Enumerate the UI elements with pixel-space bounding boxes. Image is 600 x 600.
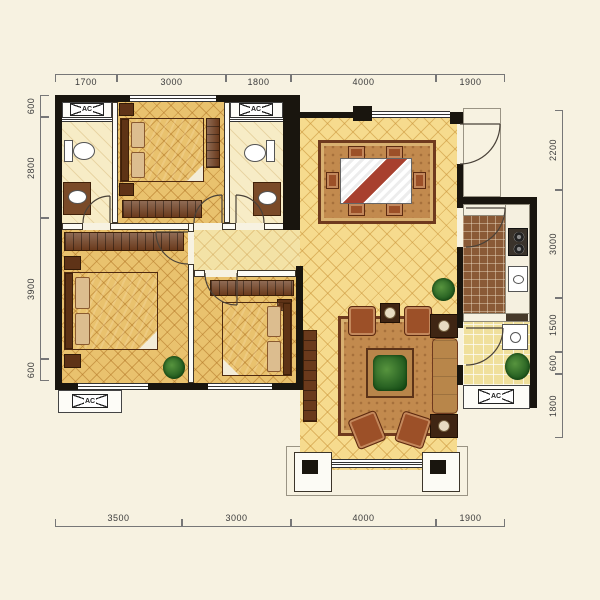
master-pillow [75, 277, 90, 309]
side-table [380, 303, 400, 323]
bedroom1-nightstand-top [119, 103, 134, 116]
wall [296, 266, 303, 390]
master-nightstand-bottom [64, 354, 81, 368]
sofa-end-table [430, 414, 458, 438]
ac-unit-icon: AC [478, 389, 514, 404]
bath1-window [62, 117, 112, 122]
dining-chair [348, 203, 365, 216]
wall [112, 102, 118, 223]
wall [457, 197, 463, 208]
dim-left-1: 600 [40, 95, 57, 117]
dim-top-5: 1900 [436, 74, 505, 91]
bedroom3-pillow [267, 306, 281, 337]
balcony-plant-icon [505, 353, 530, 380]
bathroom1-toilet-icon [73, 142, 95, 160]
dim-right-1: 2200 [562, 110, 579, 190]
bathroom1-vanity [63, 182, 91, 215]
bathroom1-toilet-tank [64, 140, 73, 162]
wall-column [353, 106, 372, 121]
dim-top-3: 1800 [226, 74, 291, 91]
armchair [404, 306, 432, 336]
bedroom3-window [208, 383, 272, 390]
lamp-icon [438, 420, 450, 432]
ac-unit-icon: AC [70, 103, 104, 116]
bedroom1-bed [120, 118, 204, 182]
wall [237, 270, 296, 277]
wall [457, 197, 537, 204]
wall [55, 95, 130, 102]
washer-door [510, 332, 521, 343]
dim-right-5: 1800 [562, 374, 579, 438]
wall [55, 383, 78, 390]
master-bed [64, 272, 158, 350]
coffee-table [366, 348, 414, 398]
sofa-end-table [430, 314, 458, 338]
armchair [348, 306, 376, 336]
bedroom1-pillow [131, 122, 145, 148]
bathroom2-toilet-icon [244, 144, 266, 162]
ac-unit-icon: AC [72, 394, 108, 408]
burner-icon [513, 244, 525, 254]
bathroom2-vanity [253, 182, 281, 216]
bedroom3-headboard [283, 303, 291, 375]
bedroom3-bed [222, 302, 292, 376]
dim-bottom-1: 3500 [55, 510, 182, 527]
burner-icon [513, 232, 525, 242]
kitchen-sink-icon [508, 266, 528, 292]
dim-bottom-4: 1900 [436, 510, 505, 527]
dim-top-2: 3000 [117, 74, 226, 91]
lamp-icon [438, 320, 450, 332]
dim-left-3: 3900 [40, 218, 57, 359]
washer-icon [502, 324, 528, 350]
dim-top-4: 4000 [291, 74, 436, 91]
bedroom1-cabinet [206, 118, 220, 168]
wall [272, 383, 303, 390]
tv-cabinet [303, 330, 317, 422]
master-plant-icon [163, 356, 185, 379]
balcony-pier-core [302, 460, 318, 474]
dining-table [340, 158, 412, 204]
dim-bottom-3: 4000 [291, 510, 436, 527]
bedroom1-nightstand-bottom [119, 183, 134, 196]
wall [188, 264, 194, 383]
bedroom3-pillow [267, 341, 281, 372]
master-headboard [65, 273, 73, 349]
wall [194, 270, 205, 277]
dim-left-4: 600 [40, 359, 57, 381]
bedroom1-window [130, 95, 216, 102]
kitchen-counter-right [505, 204, 530, 316]
dim-top-1: 1700 [55, 74, 117, 91]
bed-sheet-fold [187, 165, 203, 181]
dim-bottom-2: 3000 [182, 510, 291, 527]
wall [188, 223, 194, 232]
master-pillow [75, 313, 90, 345]
bathroom2-toilet-tank [266, 140, 275, 162]
master-wardrobe [64, 232, 184, 251]
wall [62, 223, 83, 230]
wall [222, 223, 236, 230]
wall [530, 197, 537, 408]
bedroom3-wardrobe [210, 280, 294, 296]
wall [457, 247, 463, 328]
master-window [78, 383, 148, 390]
floor-plan-page: { "plan": { "type": "apartment-floor-pla… [0, 0, 600, 600]
hallway-floor [194, 230, 300, 270]
kitchen-sink-basin [513, 275, 524, 284]
master-nightstand-top [64, 256, 81, 270]
dim-right-3: 1500 [562, 298, 579, 352]
wall-column [450, 112, 463, 124]
balcony-pier-core [430, 460, 446, 474]
wall [300, 112, 353, 118]
divider-dark-box [506, 314, 528, 321]
wall [148, 383, 208, 390]
balcony-window [332, 459, 422, 468]
bed-sheet-fold [223, 359, 239, 375]
dim-right-4: 600 [562, 352, 579, 374]
lamp-icon [384, 307, 396, 319]
ac-unit-icon: AC [239, 103, 273, 116]
bathroom1-sink-icon [68, 190, 87, 204]
bathroom2-sink-icon [258, 191, 277, 205]
sofa [432, 338, 458, 414]
dining-chair [413, 172, 426, 189]
bed-sheet-fold [139, 331, 157, 349]
bedroom1-pillow [131, 152, 145, 178]
dim-left-2: 2800 [40, 117, 57, 218]
wall-column [283, 95, 300, 230]
bath2-window [230, 117, 283, 122]
entry-porch-outline [463, 108, 501, 197]
dim-right-2: 3000 [562, 190, 579, 298]
stove-icon [508, 228, 528, 256]
bedroom1-wardrobe [122, 200, 202, 218]
dining-chair [386, 203, 403, 216]
wall [110, 223, 194, 230]
dining-window [372, 111, 450, 118]
wall [457, 164, 463, 197]
dining-chair [326, 172, 339, 189]
living-plant-icon [432, 278, 455, 301]
coffee-table-plant-icon [373, 355, 407, 391]
wall [457, 365, 463, 385]
bedroom1-headboard [121, 119, 129, 181]
